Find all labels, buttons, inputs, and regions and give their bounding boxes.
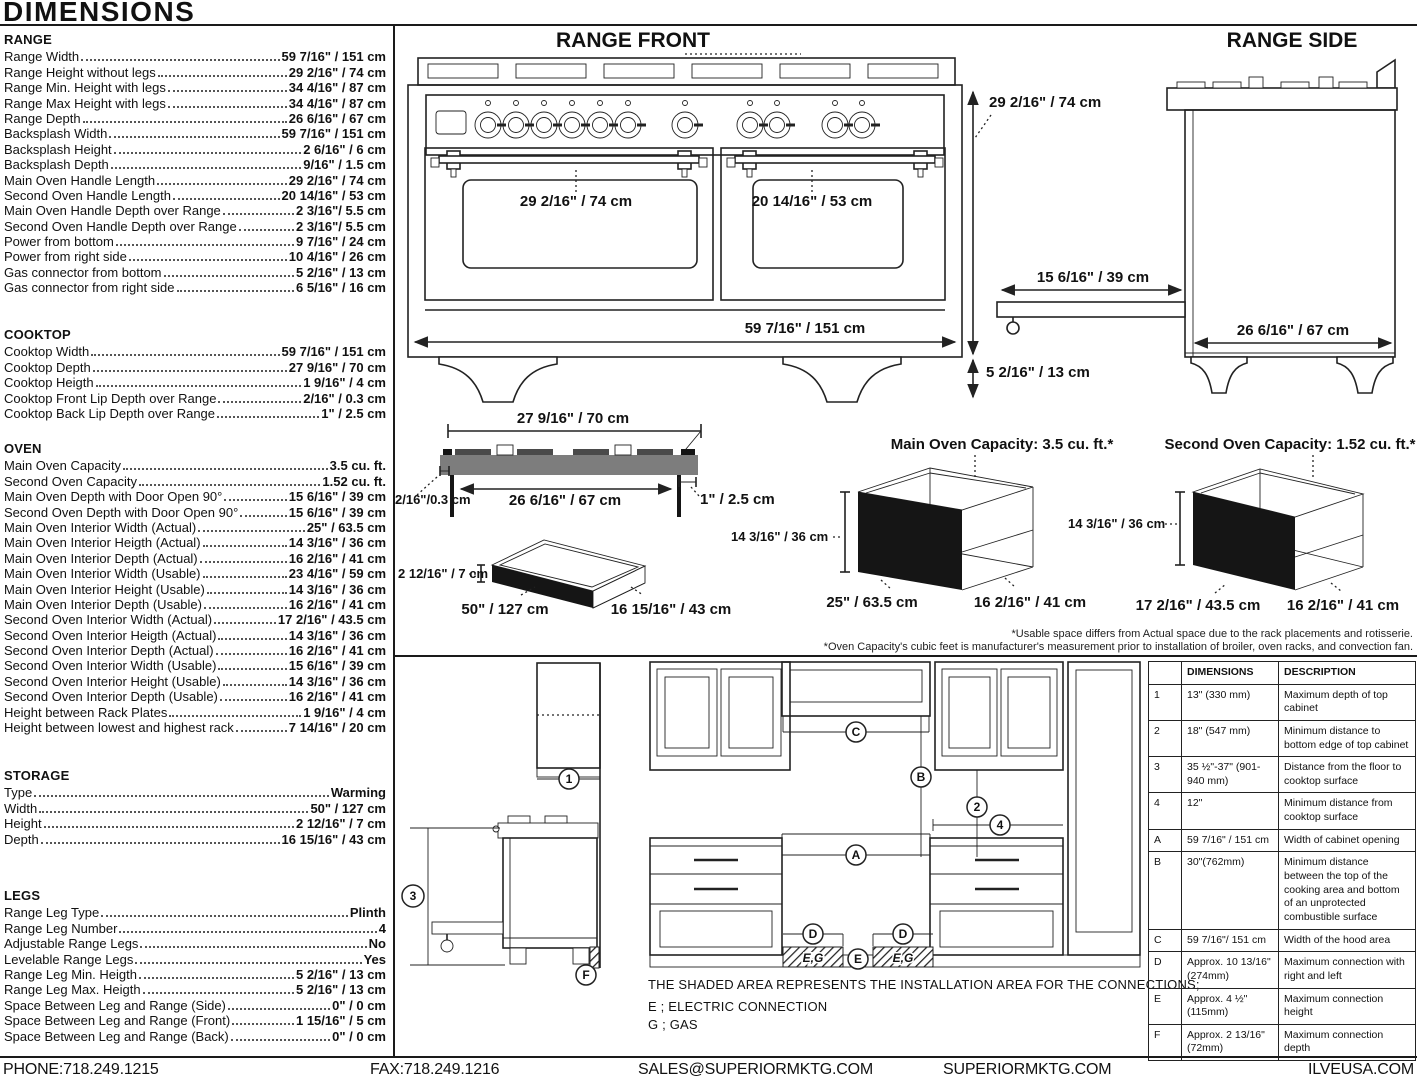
spec-row: Power from bottom9 7/16" / 24 cm: [4, 234, 386, 249]
spec-row: Depth16 15/16" / 43 cm: [4, 831, 386, 846]
dim-table-row: B 30"(762mm) Minimum distance between th…: [1149, 852, 1416, 929]
spec-row: Main Oven Interior Depth (Usable)16 2/16…: [4, 597, 386, 612]
spec-row: Main Oven Interior Width (Usable)23 4/16…: [4, 566, 386, 581]
dim-table-row: 2 18" (547 mm) Minimum distance to botto…: [1149, 720, 1416, 756]
dotted-leader: [91, 354, 279, 356]
dotted-leader: [139, 484, 320, 486]
dotted-leader: [214, 622, 276, 624]
callout-c: C: [852, 725, 861, 739]
spec-row: Cooktop Back Lip Depth over Range1" / 2.…: [4, 406, 386, 421]
dim-table-row: F Approx. 2 13/16" (72mm) Maximum connec…: [1149, 1024, 1416, 1060]
spec-row: Second Oven Interior Heigth (Actual)14 3…: [4, 627, 386, 642]
callout-a: A: [852, 848, 861, 862]
spec-row: Gas connector from right side6 5/16" / 1…: [4, 280, 386, 295]
footer-brand-site: ILVEUSA.COM: [1308, 1061, 1414, 1079]
dim-table-row: 4 12" Minimum distance from cooktop surf…: [1149, 793, 1416, 829]
dotted-leader: [224, 499, 286, 501]
dim-table-row: E Approx. 4 ½" (115mm) Maximum connectio…: [1149, 988, 1416, 1024]
main-oven-height-label: 14 3/16" / 36 cm: [731, 529, 828, 544]
main-oven-capacity-diagram: Main Oven Capacity: 3.5 cu. ft.* 14 3/16…: [731, 436, 1113, 611]
second-oven-title: Second Oven Capacity: 1.52 cu. ft.*: [1165, 436, 1416, 453]
spec-row: Main Oven Interior Depth (Actual)16 2/16…: [4, 550, 386, 565]
spec-row: TypeWarming: [4, 785, 386, 800]
spec-row: Main Oven Interior Width (Actual)25" / 6…: [4, 520, 386, 535]
spec-row: Levelable Range LegsYes: [4, 951, 386, 966]
dotted-leader: [218, 638, 286, 640]
range-diagrams: RANGE FRONT: [393, 25, 1417, 655]
dotted-leader: [223, 213, 294, 215]
dotted-leader: [240, 515, 286, 517]
second-oven-height-label: 14 3/16" / 36 cm: [1068, 516, 1165, 531]
range-front-title: RANGE FRONT: [556, 29, 710, 52]
eg-label-right: E,G: [893, 951, 914, 965]
dim-table-row: A 59 7/16" / 151 cm Width of cabinet ope…: [1149, 829, 1416, 852]
spec-row: Second Oven Interior Width (Usable)15 6/…: [4, 658, 386, 673]
leg-height-label: 5 2/16" / 13 cm: [986, 364, 1090, 381]
footer-email: SALES@SUPERIORMKTG.COM: [638, 1061, 873, 1079]
dotted-leader: [116, 244, 294, 246]
spec-row: Second Oven Interior Depth (Actual)16 2/…: [4, 643, 386, 658]
dotted-leader: [177, 290, 294, 292]
spec-row: Height2 12/16" / 7 cm: [4, 816, 386, 831]
spec-row: Backsplash Depth9/16" / 1.5 cm: [4, 157, 386, 172]
spec-list: TypeWarmingWidth50" / 127 cmHeight2 12/1…: [4, 785, 386, 847]
spec-row: Range Leg Number4: [4, 920, 386, 935]
spec-row: Cooktop Width59 7/16" / 151 cm: [4, 344, 386, 359]
dotted-leader: [231, 1039, 330, 1041]
dotted-leader: [41, 842, 280, 844]
spec-section-storage: STORAGE TypeWarmingWidth50" / 127 cmHeig…: [4, 768, 386, 847]
main-oven-title: Main Oven Capacity: 3.5 cu. ft.*: [891, 436, 1114, 453]
dotted-leader: [39, 811, 308, 813]
dotted-leader: [44, 826, 294, 828]
second-oven-depth-label: 16 2/16" / 41 cm: [1287, 597, 1399, 614]
dotted-leader: [164, 275, 294, 277]
spec-row: Space Between Leg and Range (Front)1 15/…: [4, 1013, 386, 1028]
second-oven-width-label: 17 2/16" / 43.5 cm: [1136, 597, 1261, 614]
spec-section-oven: OVEN Main Oven Capacity3.5 cu. ft.Second…: [4, 441, 386, 735]
spec-row: Cooktop Heigth1 9/16" / 4 cm: [4, 375, 386, 390]
spec-row: Width50" / 127 cm: [4, 800, 386, 815]
dotted-leader: [93, 370, 287, 372]
range-front-diagram: RANGE FRONT: [408, 29, 1101, 402]
range-height-label: 29 2/16" / 74 cm: [989, 94, 1101, 111]
spec-row: Range Min. Height with legs34 4/16" / 87…: [4, 80, 386, 95]
section-heading: OVEN: [4, 441, 386, 456]
spec-row: Main Oven Interior Height (Usable)14 3/1…: [4, 581, 386, 596]
footnote-usable-space: *Usable space differs from Actual space …: [1011, 628, 1413, 640]
spec-row: Second Oven Handle Depth over Range2 3/1…: [4, 218, 386, 233]
spec-section-legs: LEGS Range Leg TypePlinthRange Leg Numbe…: [4, 888, 386, 1044]
dotted-leader: [223, 684, 287, 686]
dotted-leader: [119, 931, 376, 933]
dotted-leader: [218, 668, 286, 670]
section-heading: RANGE: [4, 32, 386, 47]
spec-section-cooktop: COOKTOP Cooktop Width59 7/16" / 151 cmCo…: [4, 327, 386, 421]
spec-row: Backsplash Height2 6/16" / 6 cm: [4, 141, 386, 156]
callout-4: 4: [997, 818, 1004, 832]
spec-row: Second Oven Capacity1.52 cu. ft.: [4, 473, 386, 488]
dotted-leader: [203, 545, 287, 547]
spec-row: Range Leg Min. Heigth5 2/16" / 13 cm: [4, 967, 386, 982]
spec-row: Range Leg Max. Heigth5 2/16" / 13 cm: [4, 982, 386, 997]
dim-table-row: 1 13" (330 mm) Maximum depth of top cabi…: [1149, 684, 1416, 720]
header-dimensions: DIMENSIONS: [1182, 662, 1279, 685]
dotted-leader: [217, 416, 319, 418]
callout-3: 3: [410, 889, 417, 903]
dim-table-header-row: DIMENSIONS DESCRIPTION: [1149, 662, 1416, 685]
dotted-leader: [232, 1023, 294, 1025]
dotted-leader: [200, 561, 287, 563]
dotted-leader: [220, 699, 287, 701]
dotted-leader: [158, 75, 287, 77]
dotted-leader: [168, 106, 287, 108]
dotted-leader: [204, 607, 287, 609]
dotted-leader: [140, 946, 366, 948]
cooktop-profile-diagram: 27 9/16" / 70 cm 26 6/16" / 67 cm 1" / 2…: [395, 410, 775, 517]
main-handle-label: 29 2/16" / 74 cm: [520, 193, 632, 210]
spec-row: Space Between Leg and Range (Back)0" / 0…: [4, 1028, 386, 1043]
spec-row: Range Depth26 6/16" / 67 cm: [4, 111, 386, 126]
dotted-leader: [135, 962, 361, 964]
spec-row: Second Oven Interior Depth (Usable)16 2/…: [4, 689, 386, 704]
callout-2: 2: [974, 800, 981, 814]
range-depth-label: 26 6/16" / 67 cm: [1237, 322, 1349, 339]
spec-row: Cooktop Depth27 9/16" / 70 cm: [4, 359, 386, 374]
dotted-leader: [83, 121, 287, 123]
dotted-leader: [157, 183, 287, 185]
footnote-capacity: *Oven Capacity's cubic feet is manufactu…: [824, 641, 1413, 653]
dotted-leader: [143, 992, 294, 994]
dimensions-table: DIMENSIONS DESCRIPTION 1 13" (330 mm) Ma…: [1148, 661, 1416, 1061]
dotted-leader: [216, 653, 287, 655]
electric-legend: E ; ELECTRIC CONNECTION: [648, 999, 827, 1014]
installation-side-view: 3 1 F: [402, 663, 600, 985]
spec-row: Adjustable Range LegsNo: [4, 936, 386, 951]
dotted-leader: [81, 59, 279, 61]
spec-row: Main Oven Depth with Door Open 90°15 6/1…: [4, 489, 386, 504]
dotted-leader: [198, 530, 305, 532]
dotted-leader: [129, 259, 287, 261]
dotted-leader: [101, 915, 348, 917]
dotted-leader: [207, 592, 287, 594]
spec-row: Gas connector from bottom5 2/16" / 13 cm: [4, 264, 386, 279]
dotted-leader: [168, 90, 287, 92]
front-lip-label: 2/16"/0.3 cm: [395, 492, 471, 507]
storage-width-label: 50" / 127 cm: [461, 601, 548, 618]
dotted-leader: [218, 401, 301, 403]
dotted-leader: [109, 136, 279, 138]
gas-legend: G ; GAS: [648, 1017, 698, 1032]
spec-section-range: RANGE Range Width59 7/16" / 151 cmRange …: [4, 32, 386, 295]
spec-list: Range Width59 7/16" / 151 cmRange Height…: [4, 49, 386, 295]
back-lip-label: 1" / 2.5 cm: [700, 491, 775, 508]
spec-row: Second Oven Interior Height (Usable)14 3…: [4, 673, 386, 688]
dotted-leader: [228, 1008, 330, 1010]
footer-website: SUPERIORMKTG.COM: [943, 1061, 1111, 1079]
spec-list: Cooktop Width59 7/16" / 151 cmCooktop De…: [4, 344, 386, 421]
dim-table-body: 1 13" (330 mm) Maximum depth of top cabi…: [1149, 684, 1416, 1060]
callout-b: B: [917, 770, 926, 784]
callout-d: D: [809, 927, 818, 941]
dotted-leader: [203, 576, 287, 578]
spec-row: Main Oven Handle Depth over Range2 3/16"…: [4, 203, 386, 218]
cooktop-width-bottom-label: 26 6/16" / 67 cm: [509, 492, 621, 509]
eg-label-left: E,G: [803, 951, 824, 965]
spec-row: Range Height without legs29 2/16" / 74 c…: [4, 64, 386, 79]
footer-phone: PHONE:718.249.1215: [3, 1061, 159, 1079]
installation-front-view: E,G E,G C B 2 4 A D D E: [650, 662, 1140, 969]
spec-row: Range Width59 7/16" / 151 cm: [4, 49, 386, 64]
callout-e: E: [854, 952, 862, 966]
spec-row: Height between lowest and highest rack7 …: [4, 720, 386, 735]
spec-row: Backsplash Width59 7/16" / 151 cm: [4, 126, 386, 141]
dotted-leader: [239, 229, 294, 231]
spec-row: Main Oven Handle Length29 2/16" / 74 cm: [4, 172, 386, 187]
spec-row: Power from right side10 4/16" / 26 cm: [4, 249, 386, 264]
callout-d: D: [899, 927, 908, 941]
second-handle-label: 20 14/16" / 53 cm: [752, 193, 873, 210]
range-side-diagram: RANGE SIDE 15 6/16" / 39 cm 26 6/16" / 6…: [997, 29, 1397, 393]
dotted-leader: [34, 795, 329, 797]
dotted-leader: [169, 715, 301, 717]
storage-drawer-diagram: 2 12/16" / 7 cm 50" / 127 cm 16 15/16" /…: [398, 540, 731, 618]
spec-row: Second Oven Interior Width (Actual)17 2/…: [4, 612, 386, 627]
spec-row: Range Leg TypePlinth: [4, 905, 386, 920]
spec-row: Main Oven Capacity3.5 cu. ft.: [4, 458, 386, 473]
header-blank: [1149, 662, 1182, 685]
range-width-label: 59 7/16" / 151 cm: [745, 320, 866, 337]
spec-sheet: DIMENSIONS RANGE Range Width59 7/16" / 1…: [0, 0, 1417, 1080]
callout-1: 1: [566, 772, 573, 786]
dotted-leader: [123, 468, 328, 470]
installation-note: THE SHADED AREA REPRESENTS THE INSTALLAT…: [648, 977, 1200, 992]
dotted-leader: [173, 198, 280, 200]
control-knobs: [475, 101, 880, 139]
door-open-label: 15 6/16" / 39 cm: [1037, 269, 1149, 286]
dotted-leader: [236, 730, 287, 732]
dim-table-row: D Approx. 10 13/16" (274mm) Maximum conn…: [1149, 952, 1416, 988]
storage-depth-label: 16 15/16" / 43 cm: [611, 601, 732, 618]
spec-row: Second Oven Handle Length20 14/16" / 53 …: [4, 188, 386, 203]
spec-row: Second Oven Depth with Door Open 90°15 6…: [4, 504, 386, 519]
second-oven-capacity-diagram: Second Oven Capacity: 1.52 cu. ft.* 14 3…: [1068, 436, 1416, 614]
spec-row: Range Max Height with legs34 4/16" / 87 …: [4, 95, 386, 110]
header-description: DESCRIPTION: [1279, 662, 1416, 685]
dim-table-row: C 59 7/16"/ 151 cm Width of the hood are…: [1149, 929, 1416, 952]
spec-row: Main Oven Interior Heigth (Actual)14 3/1…: [4, 535, 386, 550]
dim-table-row: 3 35 ½"-37" (901-940 mm) Distance from t…: [1149, 757, 1416, 793]
section-heading: STORAGE: [4, 768, 386, 783]
spec-list: Range Leg TypePlinthRange Leg Number4Adj…: [4, 905, 386, 1044]
dotted-leader: [114, 152, 302, 154]
callout-f: F: [582, 968, 589, 982]
main-oven-depth-label: 16 2/16" / 41 cm: [974, 594, 1086, 611]
spec-row: Height between Rack Plates1 9/16" / 4 cm: [4, 704, 386, 719]
spec-row: Space Between Leg and Range (Side)0" / 0…: [4, 997, 386, 1012]
footer-fax: FAX:718.249.1216: [370, 1061, 499, 1079]
spec-list: Main Oven Capacity3.5 cu. ft.Second Oven…: [4, 458, 386, 735]
dotted-leader: [139, 977, 294, 979]
spec-row: Cooktop Front Lip Depth over Range2/16" …: [4, 390, 386, 405]
section-heading: COOKTOP: [4, 327, 386, 342]
section-heading: LEGS: [4, 888, 386, 903]
cooktop-width-top-label: 27 9/16" / 70 cm: [517, 410, 629, 427]
range-side-title: RANGE SIDE: [1227, 29, 1358, 52]
dotted-leader: [96, 385, 302, 387]
main-oven-width-label: 25" / 63.5 cm: [826, 594, 917, 611]
dotted-leader: [111, 167, 301, 169]
